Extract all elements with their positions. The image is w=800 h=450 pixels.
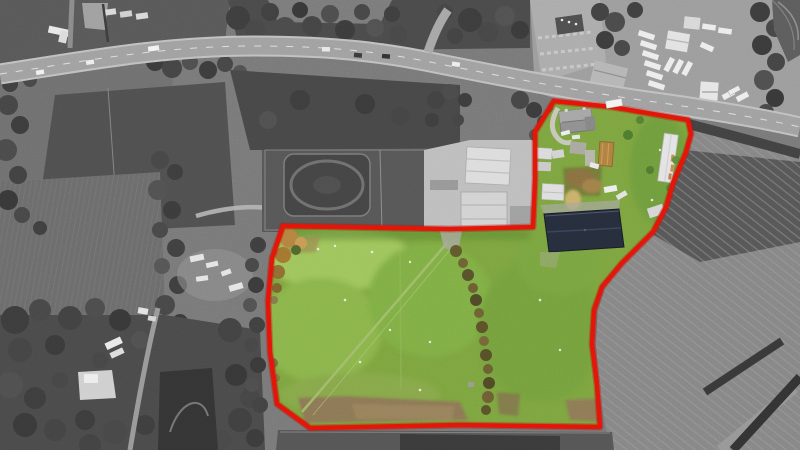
aerial-photo: [0, 0, 800, 450]
photo-grain-overlay: [0, 0, 800, 450]
aerial-photo-stage: [0, 0, 800, 450]
